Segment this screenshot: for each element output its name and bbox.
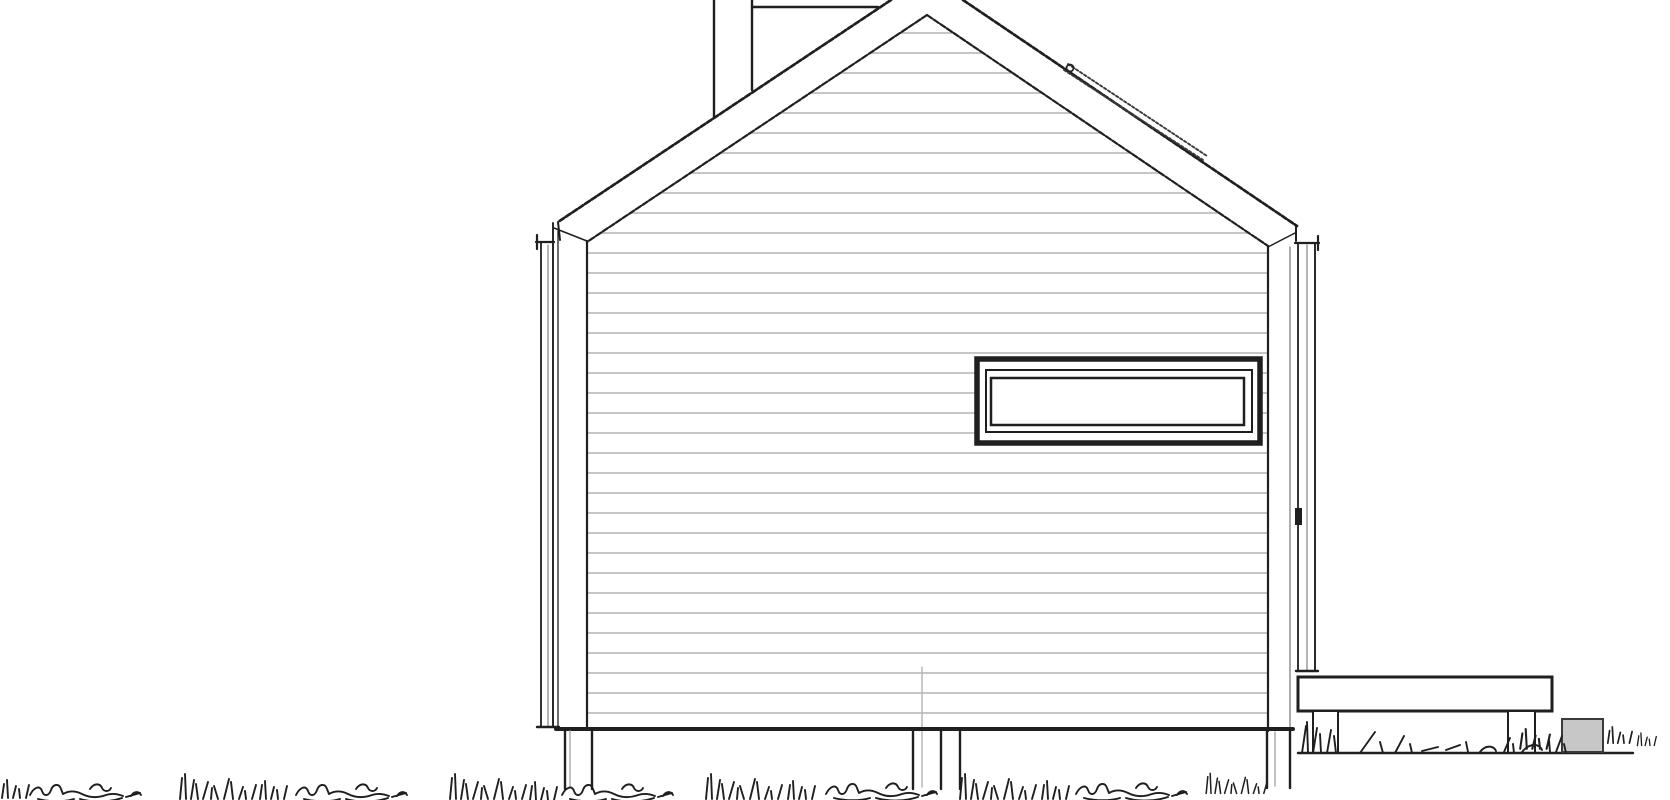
window-glass (991, 378, 1244, 425)
architectural-elevation-page (0, 0, 1670, 800)
elevation-canvas (0, 0, 1670, 800)
downspout-right-clamp (1295, 508, 1302, 525)
deck-slab (1298, 677, 1552, 711)
stone-block (1562, 719, 1603, 752)
